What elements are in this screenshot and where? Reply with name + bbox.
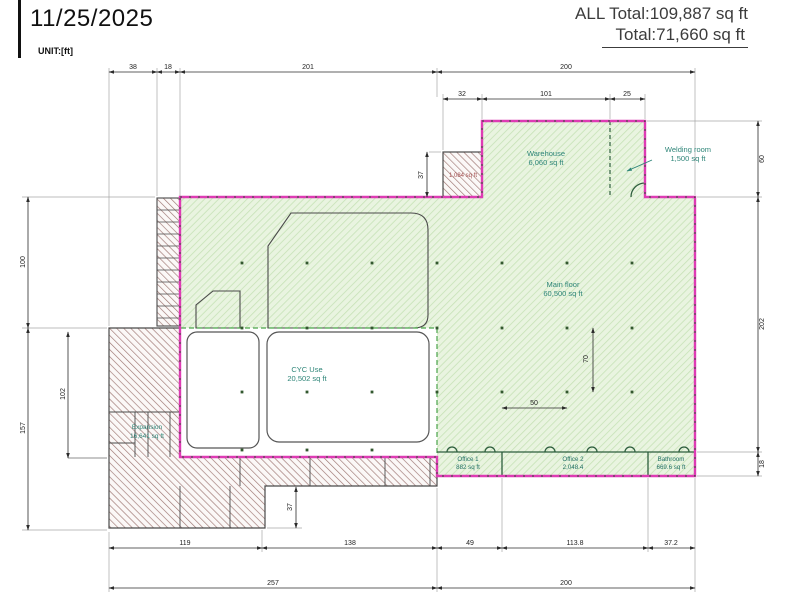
dim-right-18: 18	[759, 460, 766, 468]
dim-left-inner-102: 102	[60, 388, 67, 400]
dim-bottom-119: 119	[179, 540, 190, 547]
dim-top-18: 18	[164, 64, 172, 71]
bathroom-label: Bathroom	[658, 456, 685, 463]
expansion-area: 16,641 sq ft	[130, 433, 164, 440]
dim-col-50: 50	[530, 400, 538, 407]
dim-col-70: 70	[583, 355, 590, 363]
dim-top-201: 201	[302, 64, 314, 71]
cyc-stage-right	[267, 332, 429, 442]
office-1-label: Office 1	[457, 456, 479, 463]
existing-block-area: 1,084 sq ft	[449, 173, 477, 179]
dim-overall-257: 257	[267, 580, 279, 587]
office-2-label: Office 2	[562, 456, 584, 463]
main-floor-label: Main floor	[547, 280, 580, 289]
existing-strip	[157, 198, 180, 326]
dim-top-200: 200	[560, 64, 572, 71]
welding-room-label: Welding room	[665, 145, 711, 154]
main-floor-area: 60,500 sq ft	[543, 289, 583, 298]
dim-left-100: 100	[20, 256, 27, 268]
bathroom-area: 669.6 sq ft	[657, 464, 686, 471]
dim-bottom-138: 138	[344, 540, 356, 547]
dim-wh-25: 25	[623, 91, 631, 98]
cyc-use-area: 20,502 sq ft	[287, 374, 327, 383]
dim-right-202: 202	[759, 318, 766, 330]
dim-right-60: 60	[759, 155, 766, 163]
expansion-label: Expansion	[132, 424, 163, 431]
welding-room-area: 1,500 sq ft	[670, 154, 706, 163]
dim-bottom-113-8: 113.8	[567, 540, 584, 547]
floor-plan-drawing: 38 18 201 200 32 101 25 60 202 18 100 15…	[0, 0, 792, 612]
dim-bottom-37-2: 37.2	[664, 540, 678, 547]
dim-step-37: 37	[287, 503, 294, 511]
cyc-use-label: CYC Use	[291, 365, 322, 374]
dim-left-157: 157	[20, 422, 27, 434]
cyc-stage-left	[187, 332, 259, 448]
building-zones	[109, 121, 695, 528]
office-2-area: 2,048.4	[563, 464, 584, 471]
dim-wh-32: 32	[458, 91, 466, 98]
dim-block-37: 37	[418, 171, 425, 179]
dim-wh-101: 101	[540, 91, 552, 98]
dim-overall-200: 200	[560, 580, 572, 587]
warehouse-area: 6,060 sq ft	[528, 158, 564, 167]
warehouse-label: Warehouse	[527, 149, 565, 158]
office-1-area: 882 sq ft	[456, 464, 480, 471]
dim-top-38: 38	[129, 64, 137, 71]
floor-plan-page: 11/25/2025 UNIT:[ft] ALL Total:109,887 s…	[0, 0, 792, 612]
dim-bottom-49: 49	[466, 540, 474, 547]
